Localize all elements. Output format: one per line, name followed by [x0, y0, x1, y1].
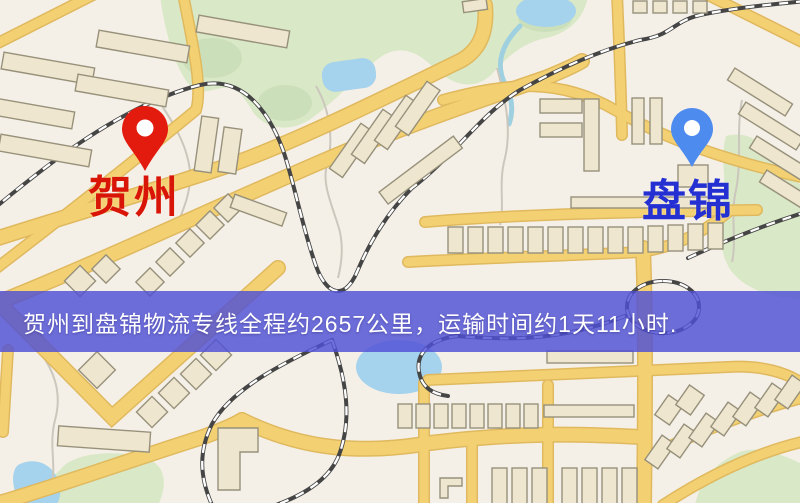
route-map-screenshot: 贺州到盘锦物流专线全程约2657公里，运输时间约1天11小时. 贺州 盘锦 [0, 0, 800, 503]
map-image [0, 0, 800, 503]
route-info-text: 贺州到盘锦物流专线全程约2657公里，运输时间约1天11小时. [23, 305, 677, 339]
origin-city-label: 贺州 [88, 176, 180, 220]
destination-city-label: 盘锦 [642, 180, 734, 224]
route-info-banner: 贺州到盘锦物流专线全程约2657公里，运输时间约1天11小时. [0, 291, 800, 352]
